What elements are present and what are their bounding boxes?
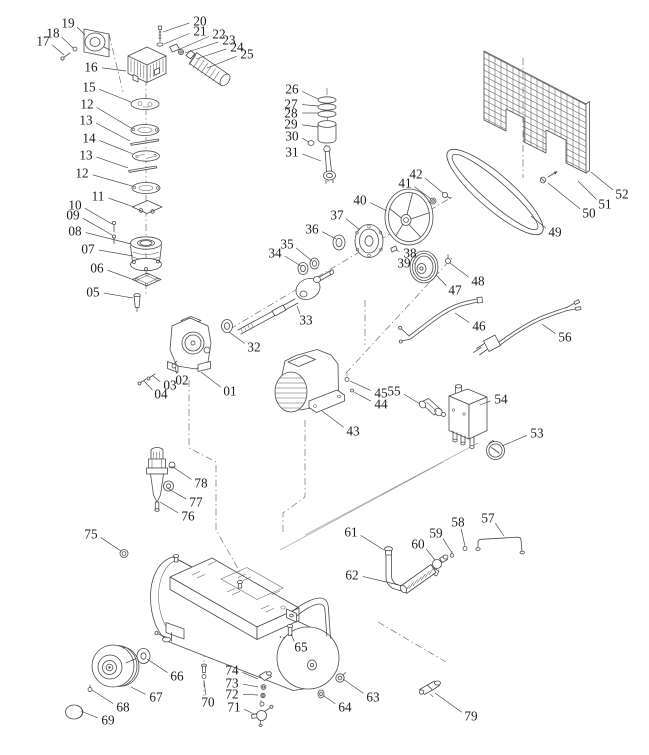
leader-line	[131, 687, 146, 694]
leader-line	[196, 49, 226, 59]
regulator-assembly	[147, 448, 176, 512]
part-label: 11	[92, 189, 105, 204]
part-label: 04	[154, 387, 168, 402]
part-label: 30	[285, 129, 299, 144]
leader-line	[548, 183, 580, 209]
part-label: 77	[189, 495, 203, 510]
part-label: 58	[451, 515, 465, 530]
exploded-parts-diagram: 0102030405060708091011121314131215161718…	[0, 0, 649, 755]
part-label: 36	[305, 222, 319, 237]
part-label: 71	[227, 700, 240, 715]
part-label: 66	[170, 669, 184, 684]
leader-line	[99, 89, 131, 102]
part-label: 67	[149, 690, 163, 705]
piston-pin	[308, 141, 314, 146]
leader-line	[443, 538, 452, 553]
leader-line	[164, 33, 190, 44]
part-label: 68	[116, 700, 130, 715]
cylinder-head	[128, 47, 166, 83]
part-label: 76	[181, 509, 195, 524]
power-cord	[474, 300, 582, 355]
leader-line	[346, 219, 360, 230]
elbow-60	[433, 560, 442, 569]
pipe-57	[478, 537, 522, 551]
part-label: 19	[61, 16, 75, 31]
part-label: 57	[481, 511, 495, 526]
motor	[275, 350, 354, 413]
part-label: 31	[285, 145, 298, 160]
part-label: 54	[494, 392, 508, 407]
leader-line	[542, 324, 555, 334]
part-label: 39	[397, 256, 411, 271]
leader-line	[370, 203, 387, 211]
part-label: 70	[201, 695, 215, 710]
part-label: 14	[82, 131, 96, 146]
part-label: 02	[175, 373, 188, 388]
leader-line	[144, 381, 152, 390]
leader-line	[97, 107, 131, 128]
part-label: 13	[79, 148, 93, 163]
part-label: 12	[75, 166, 88, 181]
part-label: 42	[409, 167, 422, 182]
leader-line	[147, 659, 167, 673]
leader-line	[396, 250, 399, 252]
part-label: 46	[472, 319, 486, 334]
crankshaft	[238, 269, 334, 334]
wheel-assembly	[66, 645, 151, 719]
leader-line	[425, 178, 443, 193]
bearing-set	[298, 235, 345, 275]
part-label: 18	[46, 26, 60, 41]
leader-line	[296, 248, 312, 261]
diagram-page: 0102030405060708091011121314131215161718…	[0, 0, 649, 755]
leader-line	[52, 45, 64, 55]
flywheel	[385, 189, 451, 245]
leader-line	[426, 549, 435, 560]
part-label: 59	[429, 526, 443, 541]
leader-line	[303, 154, 321, 161]
intake-silencer	[186, 51, 232, 88]
part-label: 32	[247, 340, 260, 355]
leader-line	[102, 68, 126, 71]
leader-line	[96, 123, 130, 141]
leader-line	[97, 157, 128, 168]
leader-line	[99, 250, 133, 256]
plug-64	[318, 690, 324, 698]
part-label: 60	[411, 537, 425, 552]
part-label: 07	[81, 242, 95, 257]
leader-line	[302, 105, 318, 106]
part-label: 25	[240, 47, 254, 62]
part-label: 26	[285, 82, 299, 97]
part-label: 45	[374, 386, 388, 401]
part-label: 64	[338, 700, 352, 715]
part-label: 21	[193, 24, 206, 39]
leader-line	[591, 172, 613, 190]
part-label: 75	[84, 527, 98, 542]
intake-fitting	[170, 44, 184, 55]
ferrule-59	[450, 554, 454, 558]
part-label: 37	[330, 208, 344, 223]
drain-bolt	[201, 664, 206, 679]
leader-line	[244, 709, 254, 714]
oil-seal	[222, 320, 233, 333]
part-label: 40	[353, 193, 367, 208]
part-label: 06	[90, 261, 104, 276]
leader-line	[404, 394, 420, 404]
valve-plate-11	[133, 201, 163, 214]
leader-line	[99, 140, 133, 154]
ferrule-58	[463, 547, 467, 551]
drain-cock	[257, 711, 267, 721]
part-label: 15	[82, 80, 96, 95]
part-label: 05	[86, 285, 100, 300]
leader-line	[343, 679, 364, 693]
part-label: 73	[225, 676, 239, 691]
leader-line	[324, 696, 335, 704]
nut-75	[120, 550, 128, 558]
leader-line	[435, 693, 462, 712]
leader-line	[167, 488, 186, 499]
leader-line	[243, 694, 258, 695]
part-label: 43	[346, 424, 360, 439]
part-label: 65	[294, 640, 308, 655]
part-label: 62	[345, 568, 358, 583]
part-label: 13	[79, 113, 93, 128]
part-label: 79	[464, 709, 478, 724]
piston-ring	[318, 97, 336, 103]
piston-group	[308, 97, 336, 184]
motor-bolt	[345, 378, 349, 382]
air-filter-assembly	[61, 29, 110, 60]
part-label: 08	[68, 224, 82, 239]
discharge-tube-assembly	[385, 537, 525, 594]
leader-line	[92, 690, 113, 704]
leader-line	[104, 293, 133, 298]
leader-line	[201, 372, 221, 387]
part-label: 53	[530, 426, 544, 441]
part-label: 55	[387, 384, 401, 399]
part-label: 52	[615, 187, 628, 202]
unloader-valve	[134, 294, 140, 312]
part-label: 35	[280, 237, 294, 252]
part-label: 63	[366, 690, 380, 705]
leader-line	[153, 376, 160, 382]
washer-18	[73, 47, 77, 51]
leader-line	[354, 392, 371, 401]
leader-line	[243, 684, 258, 687]
pressure-gauge	[487, 441, 505, 460]
valve-plate-stack	[129, 99, 163, 214]
part-label: 78	[194, 476, 208, 491]
part-label: 74	[225, 663, 239, 678]
leader-line	[495, 523, 504, 536]
belt-guard	[480, 45, 590, 183]
leader-line	[285, 256, 301, 266]
part-label: 16	[84, 60, 98, 75]
leader-line	[93, 175, 132, 186]
v-belt	[437, 138, 553, 245]
port-77	[164, 481, 174, 491]
piston-ring	[318, 111, 336, 117]
pulley-bolt	[446, 259, 451, 264]
part-label: 10	[68, 198, 82, 213]
motor-lead-wire	[399, 297, 483, 343]
connecting-rod	[325, 151, 331, 171]
leader-line	[101, 537, 121, 551]
part-label: 61	[344, 525, 357, 540]
leader-line	[302, 138, 309, 142]
leader-line	[455, 313, 469, 323]
motor-washer	[351, 389, 354, 392]
leader-line	[322, 411, 344, 427]
base-gasket	[133, 273, 162, 286]
leader-line	[173, 467, 191, 480]
tank-end-cap	[277, 627, 339, 689]
part-label: 12	[80, 97, 93, 112]
leader-line	[81, 711, 98, 718]
leader-line	[302, 125, 318, 127]
part-label: 69	[101, 713, 115, 728]
axle-pin	[88, 688, 92, 692]
part-label: 56	[558, 330, 572, 345]
leader-line	[207, 56, 237, 68]
leader-line	[163, 23, 189, 32]
leader-line	[450, 263, 469, 277]
leader-line	[461, 529, 465, 546]
head-bolt	[157, 26, 163, 46]
check-valve-fitting	[418, 399, 446, 418]
leader-line	[83, 218, 112, 235]
piston-ring	[318, 104, 336, 110]
leader-line	[302, 92, 318, 99]
part-label: 50	[582, 206, 596, 221]
part-label: 33	[299, 313, 313, 328]
part-label: 47	[448, 283, 462, 298]
pressure-switch	[449, 385, 487, 449]
leader-line	[502, 435, 527, 446]
part-label: 48	[471, 274, 485, 289]
leader-line	[62, 37, 73, 48]
part-label: 49	[548, 225, 562, 240]
leader-line	[204, 681, 206, 695]
leader-line	[531, 216, 546, 228]
part-label: 51	[598, 197, 611, 212]
leader-line	[107, 270, 134, 280]
leader-line	[160, 502, 178, 513]
leader-line	[578, 181, 597, 199]
plug	[484, 335, 501, 352]
shaft-key	[391, 246, 397, 252]
leader-line	[361, 535, 384, 550]
leader-line	[363, 576, 399, 585]
leader-line	[436, 275, 446, 286]
leader-line	[322, 232, 336, 239]
leader-line	[185, 42, 218, 53]
wheel-washer	[137, 649, 150, 664]
leader-line	[109, 198, 134, 207]
part-label: 01	[223, 384, 236, 399]
